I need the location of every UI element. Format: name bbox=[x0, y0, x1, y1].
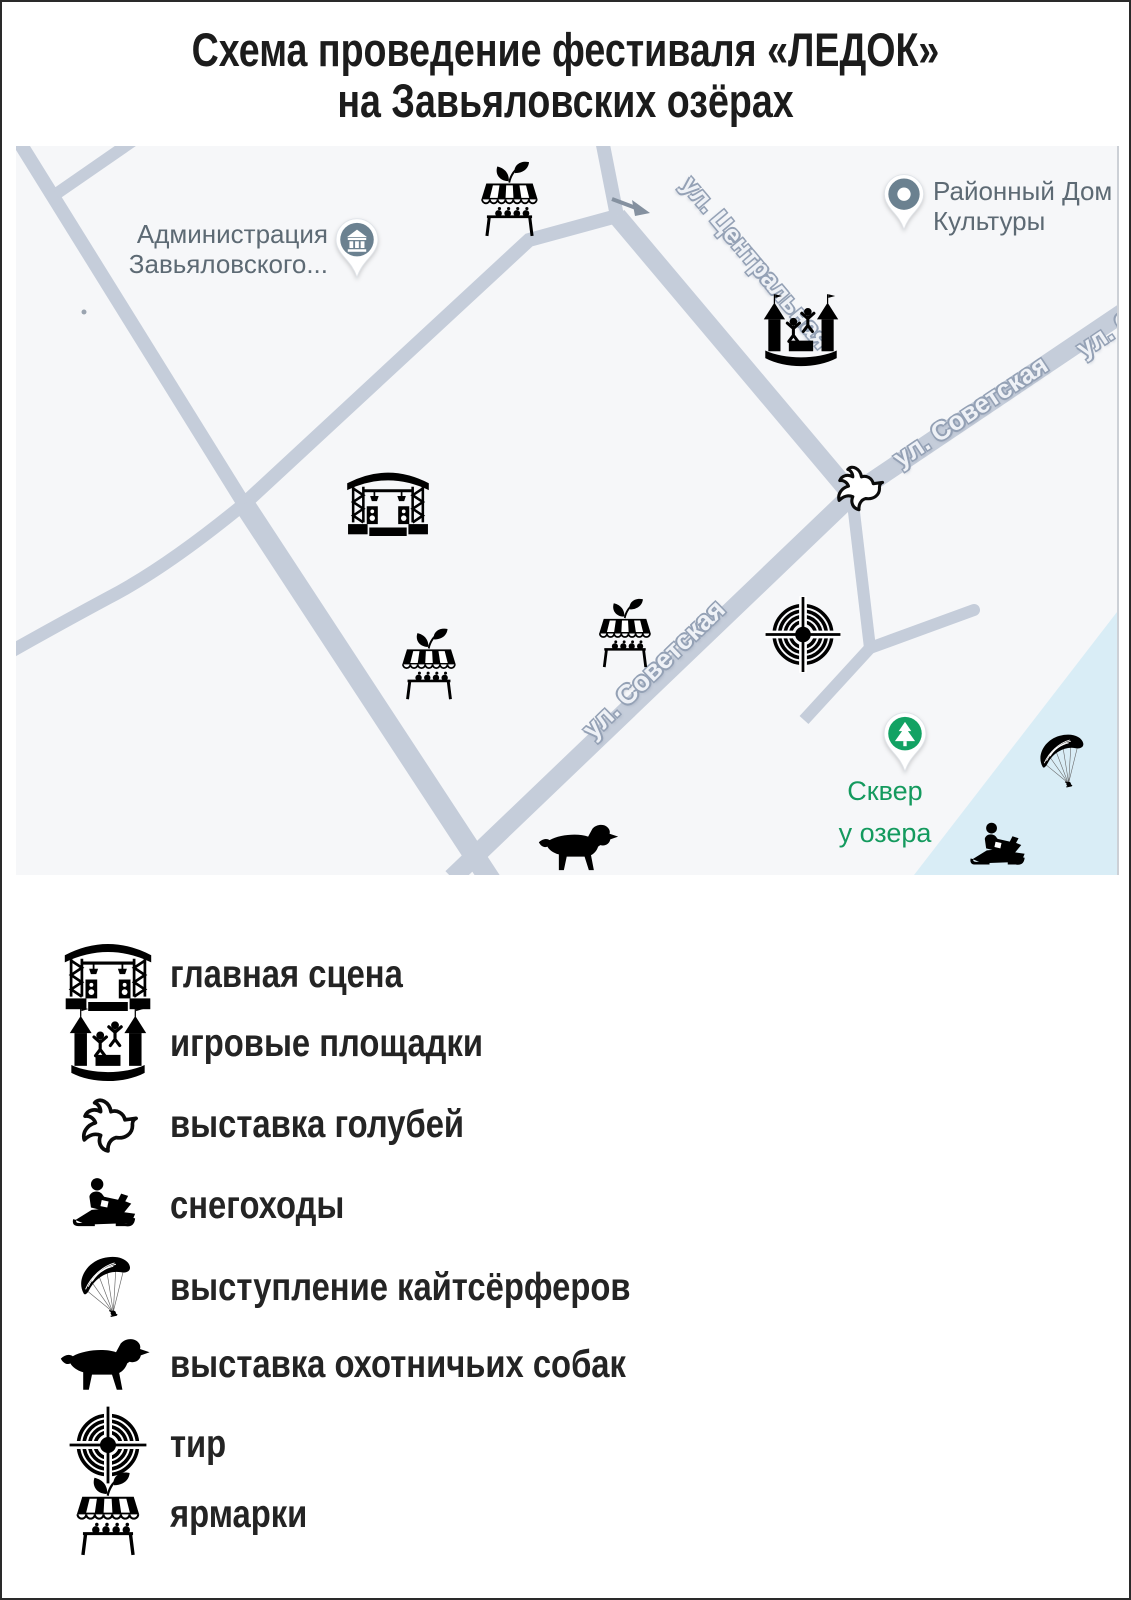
legend-label: выставка охотничьих собак bbox=[170, 1343, 626, 1387]
bouncy-castle-icon bbox=[52, 1005, 164, 1083]
map-marker-dog-show bbox=[521, 823, 641, 873]
map-marker-playground bbox=[762, 292, 840, 368]
map-dot bbox=[82, 310, 87, 315]
legend-row-fairs: ярмарки bbox=[52, 1468, 333, 1562]
snowmobile-icon bbox=[52, 1175, 164, 1237]
snowmobile-icon bbox=[959, 820, 1043, 874]
page-title: Схема проведение фестиваля «ЛЕДОК» на За… bbox=[115, 24, 1017, 126]
map-canvas: ул. Центральная ул. Советская ул. С ул. … bbox=[16, 146, 1119, 875]
hunting-dog-icon bbox=[52, 1337, 164, 1393]
map-marker-fair-center bbox=[597, 597, 653, 671]
park-tree-pin-icon bbox=[879, 711, 931, 773]
park-label-line2: у озера bbox=[823, 812, 947, 854]
stage-icon bbox=[345, 468, 431, 536]
administration-label-line2: Завьяловского... bbox=[116, 249, 328, 279]
legend-row-playgrounds: игровые площадки bbox=[52, 997, 543, 1091]
map-marker-fair-north bbox=[479, 160, 540, 240]
kitesurf-icon bbox=[52, 1248, 164, 1328]
fair-stall-icon bbox=[597, 597, 653, 671]
legend-label: главная сцена bbox=[170, 953, 403, 997]
park-label-line1: Сквер bbox=[823, 770, 947, 812]
target-icon bbox=[764, 595, 842, 674]
legend-label: ярмарки bbox=[170, 1493, 307, 1537]
dove-icon bbox=[52, 1088, 164, 1162]
legend-row-snowmobiles: снегоходы bbox=[52, 1159, 378, 1253]
festival-map-poster: Схема проведение фестиваля «ЛЕДОК» на За… bbox=[0, 0, 1131, 1600]
legend-label: выставка голубей bbox=[170, 1103, 464, 1147]
map-marker-dove-exhibition bbox=[828, 455, 890, 521]
hunting-dog-icon bbox=[521, 823, 641, 873]
fair-stall-icon bbox=[52, 1471, 164, 1559]
administration-label-line1: Администрация bbox=[116, 219, 328, 249]
legend-row-doves: выставка голубей bbox=[52, 1078, 520, 1172]
legend-label: выступление кайтсёрферов bbox=[170, 1266, 630, 1310]
dove-icon bbox=[828, 455, 890, 521]
legend-label: игровые площадки bbox=[170, 1022, 483, 1066]
park-label: Сквер у озера bbox=[823, 770, 947, 854]
map-marker-main-stage bbox=[345, 468, 431, 536]
map-marker-kitesurfers bbox=[1035, 726, 1093, 798]
government-building-pin-icon bbox=[331, 217, 383, 279]
place-dot-pin-icon bbox=[880, 173, 928, 231]
culture-house-label-line1: Районный Дом bbox=[933, 176, 1112, 206]
administration-label: Администрация Завьяловского... bbox=[116, 219, 328, 279]
fair-stall-icon bbox=[479, 160, 540, 240]
map-marker-snowmobiles bbox=[959, 820, 1043, 874]
kitesurf-icon bbox=[1035, 726, 1093, 798]
page-title-line1: Схема проведение фестиваля «ЛЕДОК» bbox=[115, 24, 1017, 75]
culture-house-label: Районный Дом Культуры bbox=[933, 176, 1112, 236]
legend-label: тир bbox=[170, 1423, 226, 1467]
fair-stall-icon bbox=[400, 626, 458, 704]
bouncy-castle-icon bbox=[762, 292, 840, 368]
page-title-line2: на Завьяловских озёрах bbox=[115, 75, 1017, 126]
map-marker-fair-west bbox=[400, 626, 458, 704]
legend-label: снегоходы bbox=[170, 1184, 344, 1228]
map-marker-shooting-range bbox=[764, 595, 842, 674]
culture-house-label-line2: Культуры bbox=[933, 206, 1112, 236]
